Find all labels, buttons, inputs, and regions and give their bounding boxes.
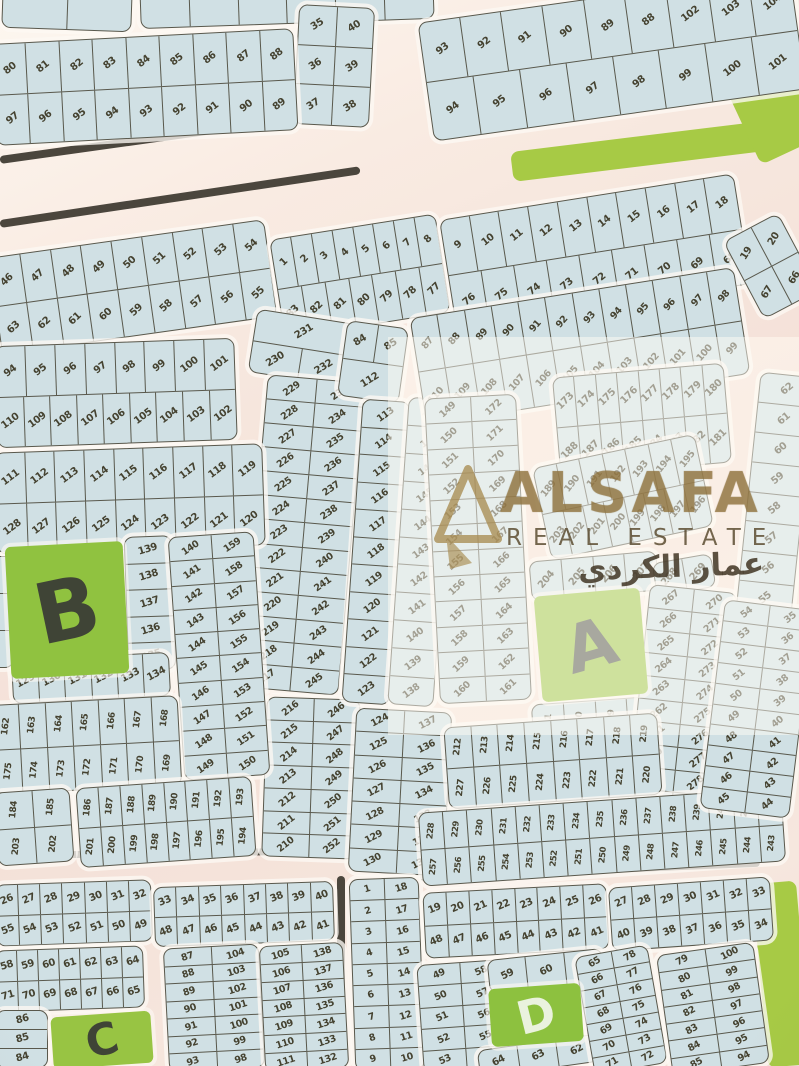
plot-number: 111 xyxy=(0,468,21,488)
plot-number: 214 xyxy=(506,735,517,753)
plot-number: 124 xyxy=(120,514,141,534)
plot-number: 167 xyxy=(133,711,144,729)
plot-number: 100 xyxy=(719,946,740,963)
plot-cell: 126 xyxy=(354,755,402,780)
plot-cell: 51 xyxy=(85,912,108,942)
plot-number: 122 xyxy=(179,512,200,532)
plot-number: 42 xyxy=(765,756,780,771)
plot-cell: 121 xyxy=(346,620,394,650)
plot-number: 219 xyxy=(260,620,280,638)
plot-number: 235 xyxy=(596,810,606,827)
plot-number: 192 xyxy=(214,789,225,807)
plot-number: 193 xyxy=(236,788,247,806)
plot-cell: 230 xyxy=(249,341,302,379)
plot-number: 35 xyxy=(730,919,746,933)
plot-number: 90 xyxy=(558,24,574,40)
plot-number: 8 xyxy=(368,1033,377,1044)
plot-number: 86 xyxy=(14,1013,29,1026)
plot-cell: 140 xyxy=(169,535,212,561)
plot-cell: 122 xyxy=(344,647,392,677)
plot-number: 138 xyxy=(312,945,332,960)
plot-number: 231 xyxy=(499,817,509,834)
plot-number: 97 xyxy=(729,999,744,1013)
plot-row: 71706968676665 xyxy=(0,976,144,1012)
plot-number: 232 xyxy=(523,815,533,832)
plot-number: 118 xyxy=(366,543,386,561)
plot-number: 91 xyxy=(184,1020,199,1033)
plot-block-pairs-105-138: 1051381061371071361081351091341101331111… xyxy=(259,942,349,1066)
plot-number: 222 xyxy=(267,548,287,566)
plot-number: 67 xyxy=(592,989,607,1003)
plot-cell: 105 xyxy=(129,392,157,442)
plot-block-pairs-87-104: 871048810389102901019110092999398 xyxy=(163,944,265,1066)
plot-number: 48 xyxy=(61,263,77,279)
plot-row: 138 xyxy=(126,562,173,590)
plot-number: 30 xyxy=(682,891,698,905)
plot-number: 249 xyxy=(324,769,344,788)
plot-number: 60 xyxy=(98,307,114,323)
plot-row: 203202 xyxy=(0,824,73,866)
plot-number: 10 xyxy=(400,1052,414,1065)
plot-number: 15 xyxy=(627,210,643,226)
plot-number: 227 xyxy=(277,428,297,446)
plot-number: 125 xyxy=(368,736,389,753)
plot-number: 88 xyxy=(641,13,657,29)
plot-cell: 112 xyxy=(24,452,55,503)
plot-cell: 87 xyxy=(225,31,261,82)
plot-number: 220 xyxy=(642,766,653,784)
plot-number: 230 xyxy=(264,350,286,369)
plot-number: 119 xyxy=(237,460,258,480)
plot-cell: 187 xyxy=(97,786,122,826)
plot-number: 70 xyxy=(601,1039,616,1053)
plot-number: 211 xyxy=(276,813,296,832)
plot-block-top-partial-b xyxy=(139,0,434,29)
plot-number: 103 xyxy=(226,964,246,979)
plot-number: 94 xyxy=(737,1050,752,1064)
plot-cell: 8 xyxy=(355,1028,389,1049)
plot-cell: 229 xyxy=(442,810,469,847)
plot-cell: 60 xyxy=(37,949,59,979)
plot-number: 37 xyxy=(305,97,321,112)
plot-number: 65 xyxy=(126,985,141,998)
plot-cell: 100 xyxy=(704,37,759,101)
plot-number: 36 xyxy=(707,921,723,935)
plot-number: 16 xyxy=(656,205,672,221)
plot-number: 243 xyxy=(767,835,777,852)
plot-cell: 203 xyxy=(0,828,36,866)
plot-row: 137 xyxy=(127,588,174,616)
plot-number: 62 xyxy=(569,1043,585,1058)
plot-cell: 136 xyxy=(401,734,450,759)
plot-number: 234 xyxy=(327,408,347,426)
plot-cell: 135 xyxy=(400,758,449,783)
plot-number: 38 xyxy=(661,924,677,938)
plot-number: 53 xyxy=(45,922,61,936)
plot-number: 99 xyxy=(678,68,694,84)
plot-row: 3738 xyxy=(294,83,370,126)
plot-cell: 36 xyxy=(296,45,334,86)
plot-number: 19 xyxy=(740,246,755,262)
plot-number: 186 xyxy=(83,799,94,817)
plot-cell: 44 xyxy=(516,920,540,953)
plot-number: 53 xyxy=(437,1053,452,1066)
plot-number: 81 xyxy=(679,988,694,1002)
plot-cell: 35 xyxy=(298,5,336,46)
plot-number: 9 xyxy=(368,1054,377,1065)
plot-number: 98 xyxy=(727,981,742,995)
plot-cell: 166 xyxy=(97,699,126,744)
plot-cell: 61 xyxy=(58,949,80,979)
plot-number: 102 xyxy=(227,982,247,997)
plot-cell: 134 xyxy=(399,781,448,806)
plot-cell: 247 xyxy=(662,832,689,869)
plot-number: 91 xyxy=(517,30,533,46)
plot-cell: 188 xyxy=(119,785,144,825)
plot-number: 44 xyxy=(760,798,775,813)
plot-number: 67 xyxy=(760,284,775,300)
plot-cell: 95 xyxy=(24,345,56,396)
plot-row xyxy=(2,0,131,31)
plot-cell: 1 xyxy=(350,879,384,900)
plot-number: 239 xyxy=(317,528,337,546)
plot-number: 84 xyxy=(135,54,151,70)
plot-row: 136 xyxy=(127,615,174,643)
plot-number: 125 xyxy=(90,515,111,535)
plot-number: 226 xyxy=(483,777,494,795)
plot-number: 75 xyxy=(493,287,509,303)
plot-number: 135 xyxy=(415,762,436,779)
plot-cell: 197 xyxy=(166,821,191,861)
plot-number: 11 xyxy=(509,228,525,244)
plot-number: 31 xyxy=(705,889,721,903)
plot-row: 55545352515049 xyxy=(0,910,152,946)
plot-number: 77 xyxy=(426,281,442,297)
plot-number: 71 xyxy=(604,1056,619,1066)
plot-number: 256 xyxy=(453,857,463,874)
plot-number: 12 xyxy=(398,1009,412,1022)
plot-number: 144 xyxy=(187,636,208,654)
plot-number: 96 xyxy=(662,297,677,312)
plot-number: 19 xyxy=(427,902,443,916)
plot-cell: 123 xyxy=(343,675,391,705)
plot-cell: 91 xyxy=(195,83,231,134)
plot-cell: 20 xyxy=(445,891,469,924)
plot-cell: 3 xyxy=(351,921,385,942)
plot-row: 139 xyxy=(125,536,172,563)
plot-number: 255 xyxy=(477,855,487,872)
plot-block-bl-26-55: 2627282930313255545352515049 xyxy=(0,879,153,946)
sector-marker-D: D xyxy=(488,983,584,1047)
plot-cell: 100 xyxy=(173,340,205,391)
plot-number: 68 xyxy=(63,988,78,1001)
plot-cell: 220 xyxy=(632,754,661,795)
plot-cell: 101 xyxy=(751,30,799,94)
plot-cell: 36 xyxy=(702,912,727,944)
plot-cell: 154 xyxy=(219,654,263,680)
plot-row: 215247 xyxy=(266,719,359,745)
plot-row: 949596979899100101 xyxy=(0,339,235,397)
plot-cell: 171 xyxy=(100,743,129,788)
plot-cell: 114 xyxy=(83,450,114,501)
plot-number: 72 xyxy=(640,1050,655,1064)
plot-number: 203 xyxy=(11,837,22,855)
plot-number: 247 xyxy=(671,842,681,859)
plot-number: 79 xyxy=(379,289,395,305)
plot-cell: 146 xyxy=(179,681,222,707)
plot-number: 92 xyxy=(476,36,492,52)
plot-number: 95 xyxy=(71,108,87,124)
plot-number: 245 xyxy=(719,838,729,855)
plot-number: 104 xyxy=(225,947,245,962)
plot-cell: 92 xyxy=(161,85,197,136)
plot-number: 74 xyxy=(526,282,542,298)
plot-block-col-86-84: 868584 xyxy=(0,1010,48,1066)
plot-cell: 248 xyxy=(638,833,665,870)
plot-number: 198 xyxy=(151,833,162,851)
plot-number: 38 xyxy=(269,891,285,905)
plot-cell: 113 xyxy=(54,451,85,502)
plot-number: 14 xyxy=(597,214,613,230)
watermark-arabic-signature: عمار الكردي xyxy=(577,546,764,588)
plot-number: 97 xyxy=(689,293,704,308)
plot-number: 151 xyxy=(236,730,257,748)
plot-number: 43 xyxy=(270,921,286,935)
plot-number: 92 xyxy=(185,1038,200,1051)
plot-number: 60 xyxy=(538,964,554,979)
plot-number: 40 xyxy=(615,927,631,941)
plot-number: 96 xyxy=(62,361,78,377)
plot-number: 212 xyxy=(453,738,464,756)
plot-number: 201 xyxy=(86,838,97,856)
plot-block-pairs-79-100: 79100809981988297839684958594 xyxy=(656,942,770,1066)
plot-number: 24 xyxy=(542,896,558,910)
plot-number: 107 xyxy=(272,983,292,998)
plot-number: 47 xyxy=(30,268,46,284)
plot-number: 94 xyxy=(105,106,121,122)
plot-number: 54 xyxy=(243,238,259,254)
plot-number: 1 xyxy=(278,257,290,269)
plot-cell: 214 xyxy=(265,743,311,766)
plot-cell xyxy=(66,0,132,31)
plot-number: 39 xyxy=(638,926,654,940)
plot-number: 20 xyxy=(450,901,466,915)
plot-number: 59 xyxy=(500,968,516,983)
plot-number: 95 xyxy=(492,94,508,110)
alsafa-logo-icon xyxy=(432,465,504,575)
plot-cell: 54 xyxy=(233,220,270,271)
plot-row: 110109108107106105104103102 xyxy=(0,388,237,447)
plot-cell: 149 xyxy=(184,753,227,779)
plot-number: 92 xyxy=(555,314,570,329)
plot-number: 187 xyxy=(105,797,116,815)
plot-cell: 159 xyxy=(210,532,254,558)
plot-number: 64 xyxy=(491,1054,507,1066)
plot-number: 235 xyxy=(325,432,345,450)
plot-cell: 43 xyxy=(538,919,562,952)
plot-cell: 108 xyxy=(49,395,77,445)
plot-row: 84 xyxy=(0,1048,47,1066)
plot-cell: 93 xyxy=(169,1052,216,1066)
plot-number: 37 xyxy=(247,892,263,906)
plot-map-photo: 3540363937388081828384858687889796959493… xyxy=(0,0,799,1066)
plot-cell: 12 xyxy=(388,1005,423,1026)
plot-cell: 85 xyxy=(0,1030,47,1048)
plot-number: 25 xyxy=(564,895,580,909)
plot-number: 73 xyxy=(559,277,575,293)
plot-cell: 164 xyxy=(45,702,74,747)
plot-number: 47 xyxy=(452,933,468,947)
plot-cell: 129 xyxy=(350,825,398,850)
plot-cell: 234 xyxy=(563,802,590,839)
plot-cell: 11 xyxy=(388,1026,423,1047)
plot-cell: 246 xyxy=(686,830,713,867)
plot-number: 246 xyxy=(326,701,346,720)
plot-cell: 253 xyxy=(517,842,544,879)
plot-number: 80 xyxy=(2,61,18,77)
plot-cell: 212 xyxy=(264,788,310,811)
plot-cell: 34 xyxy=(748,909,773,941)
plot-cell: 28 xyxy=(39,883,62,913)
plot-number: 148 xyxy=(193,733,214,751)
plot-row xyxy=(140,0,433,28)
plot-number: 4 xyxy=(340,247,352,259)
plot-cell: 256 xyxy=(445,847,472,884)
plot-number: 37 xyxy=(684,923,700,937)
plot-number: 135 xyxy=(315,999,335,1014)
plot-number: 239 xyxy=(692,804,702,821)
plot-cell: 195 xyxy=(209,818,234,858)
plot-number: 172 xyxy=(83,758,94,776)
watermark-brand: ALSAFA xyxy=(500,461,762,526)
plot-cell: 102 xyxy=(208,389,236,439)
plot-number: 30 xyxy=(88,890,104,904)
plot-block-blk-184-203a: 184185203202 xyxy=(0,787,74,866)
plot-number: 213 xyxy=(278,768,298,787)
plot-row: 213249 xyxy=(265,765,358,791)
plot-number: 8 xyxy=(422,234,434,246)
plot-number: 216 xyxy=(280,700,300,719)
plot-cell: 255 xyxy=(469,845,496,882)
plot-number: 42 xyxy=(566,927,582,941)
plot-cell: 106 xyxy=(261,963,302,982)
plot-number: 233 xyxy=(547,814,557,831)
plot-cell: 231 xyxy=(490,807,517,844)
plot-cell: 233 xyxy=(539,804,566,841)
plot-number: 248 xyxy=(647,843,657,860)
plot-cell: 238 xyxy=(659,795,686,832)
plot-cell: 40 xyxy=(310,882,333,911)
plot-number: 221 xyxy=(264,572,284,590)
plot-number: 86 xyxy=(202,50,218,66)
plot-number: 228 xyxy=(279,404,299,422)
plot-number: 94 xyxy=(445,100,461,116)
plot-number: 229 xyxy=(451,820,461,837)
plot-number: 76 xyxy=(628,983,643,997)
plot-cell: 26 xyxy=(0,885,18,915)
plot-number: 6 xyxy=(381,241,393,253)
plot-cell: 257 xyxy=(421,849,447,886)
plot-number: 108 xyxy=(53,410,74,430)
plot-number: 147 xyxy=(192,709,213,727)
plot-cell: 45 xyxy=(701,787,747,812)
plot-cell: 48 xyxy=(425,925,448,958)
plot-cell: 97 xyxy=(565,57,620,121)
plot-number: 47 xyxy=(721,751,736,766)
plot-cell: 94 xyxy=(94,88,130,139)
plot-number: 82 xyxy=(309,300,325,316)
plot-cell: 4 xyxy=(352,943,386,964)
plot-cell: 186 xyxy=(76,788,100,828)
plot-number: 55 xyxy=(0,924,16,938)
plot-block-ml-94-110: 9495969798991001011101091081071061051041… xyxy=(0,338,238,448)
plot-number: 103 xyxy=(721,0,742,19)
plot-number: 223 xyxy=(269,524,289,542)
plot-number: 32 xyxy=(728,888,744,902)
plot-cell: 5 xyxy=(353,964,387,985)
plot-cell: 147 xyxy=(181,705,224,731)
plot-number: 26 xyxy=(587,893,603,907)
plot-cell: 155 xyxy=(217,629,261,655)
plot-number: 97 xyxy=(5,111,21,127)
plot-number: 77 xyxy=(625,966,640,980)
plot-cell: 211 xyxy=(263,811,309,834)
plot-cell: 248 xyxy=(311,744,358,767)
plot-number: 156 xyxy=(227,609,248,627)
plot-cell: 192 xyxy=(206,779,231,819)
plot-cell: 98 xyxy=(114,342,146,393)
plot-cell: 202 xyxy=(34,825,74,863)
plot-cell: 38 xyxy=(656,915,681,947)
plot-cell: 32 xyxy=(723,879,748,911)
plot-number: 243 xyxy=(309,624,329,642)
plot-cell: 252 xyxy=(541,840,568,877)
plot-cell: 39 xyxy=(332,47,371,88)
plot-cell: 116 xyxy=(143,447,174,498)
plot-number: 132 xyxy=(317,1052,337,1066)
plot-cell: 98 xyxy=(612,50,667,114)
plot-number: 162 xyxy=(1,718,12,736)
plot-number: 253 xyxy=(526,852,536,869)
plot-number: 40 xyxy=(314,889,330,903)
plot-cell: 82 xyxy=(58,40,94,91)
plot-cell: 245 xyxy=(289,667,339,694)
plot-number: 105 xyxy=(133,407,154,427)
plot-cell: 53 xyxy=(423,1049,466,1066)
plot-cell: 172 xyxy=(73,745,102,790)
plot-number: 60 xyxy=(41,958,56,971)
plot-number: 61 xyxy=(67,312,83,328)
plot-number: 85 xyxy=(169,52,185,68)
plot-number: 128 xyxy=(2,519,23,539)
plot-cell: 117 xyxy=(172,446,203,497)
plot-number: 104 xyxy=(159,407,180,427)
plot-number: 63 xyxy=(530,1049,546,1064)
plot-number: 170 xyxy=(135,755,146,773)
plot-cell: 95 xyxy=(61,90,97,141)
plot-cell: 68 xyxy=(59,979,81,1009)
plot-number: 153 xyxy=(232,682,253,700)
plot-number: 110 xyxy=(275,1036,295,1051)
plot-row: 214248 xyxy=(265,742,358,768)
plot-number: 99 xyxy=(152,358,168,374)
plot-number: 251 xyxy=(574,848,584,865)
plot-number: 41 xyxy=(315,919,331,933)
plot-number: 39 xyxy=(292,890,308,904)
plot-cell: 41 xyxy=(584,917,608,950)
plot-cell: 86 xyxy=(192,33,228,84)
plot-number: 62 xyxy=(37,316,53,332)
